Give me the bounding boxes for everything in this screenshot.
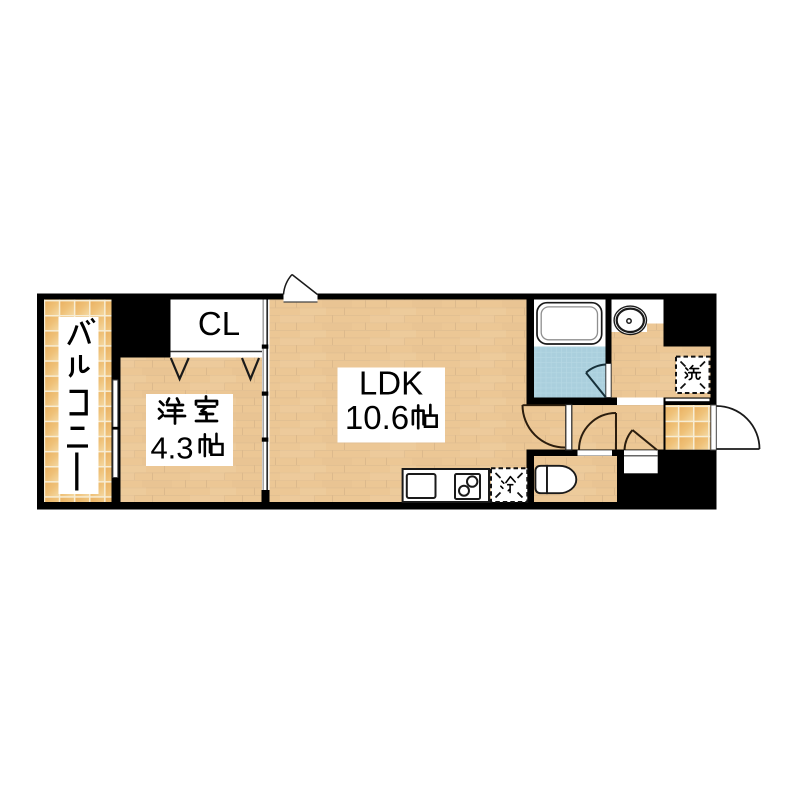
svg-text:10.6: 10.6: [345, 399, 409, 436]
svg-text:4.3: 4.3: [150, 431, 193, 466]
svg-text:CL: CL: [198, 305, 240, 342]
svg-text:LDK: LDK: [359, 365, 423, 402]
